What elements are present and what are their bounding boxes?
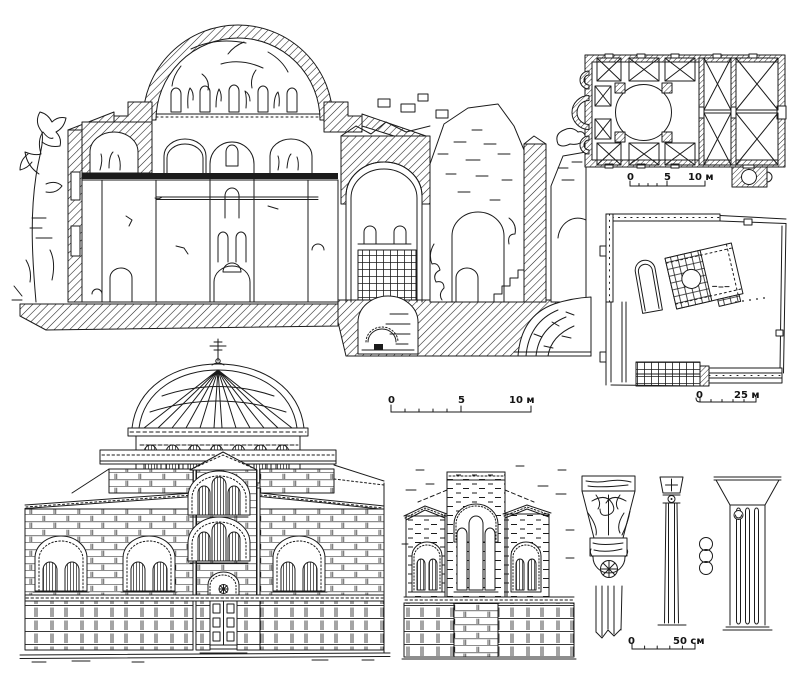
- details-scale-bar: 0 50 см: [628, 636, 705, 649]
- colonnette-detail: [658, 477, 686, 625]
- fluted-pier-detail: [714, 477, 781, 630]
- window-recess-right: [271, 536, 327, 592]
- scale-label: 5: [458, 395, 465, 406]
- architectural-details-drawing: 0 50 см: [580, 453, 795, 668]
- figure-page: 0 5 10 м: [0, 0, 800, 677]
- cross-finial-icon: [210, 339, 226, 365]
- window-recess-left: [33, 536, 89, 592]
- shaft-section-profile: [700, 538, 713, 575]
- fragment-tower: [447, 472, 505, 597]
- facade-fragment-drawing: [398, 450, 583, 665]
- scale-label: 10 м: [688, 172, 714, 183]
- scale-label: 0: [628, 636, 635, 647]
- scale-label: 50 см: [673, 636, 705, 647]
- monastery-site-plan-drawing: 0 25 м: [596, 202, 794, 414]
- dome-section: [114, 25, 362, 132]
- plan-vault-bays: [595, 58, 778, 165]
- ashlar-base: [20, 595, 390, 662]
- floor-plan-scale-bar: 0 5 10 м: [627, 172, 714, 186]
- plan-side-chapel: [732, 165, 772, 187]
- ribbed-dome: [128, 364, 308, 436]
- scale-label: 0: [696, 390, 703, 401]
- scale-label: 5: [664, 172, 671, 183]
- tree: [12, 112, 66, 302]
- scale-label: 25 м: [734, 390, 760, 401]
- elevation-scale-bar: 0 5 10 м: [383, 392, 543, 422]
- church-cross-section-drawing: [6, 4, 586, 356]
- fragment-left-bay: [404, 506, 447, 597]
- refectory-plan: [634, 259, 663, 314]
- south-stoa: [611, 362, 782, 386]
- church-facade-elevation-drawing: [12, 333, 397, 668]
- plan-naos: [615, 83, 672, 142]
- katholikon-plan: [665, 243, 745, 316]
- scale-label: 10 м: [509, 395, 535, 406]
- window-recess-mid: [121, 536, 177, 592]
- plan-walls: [572, 54, 786, 168]
- carved-capital-detail: [582, 476, 635, 638]
- church-floor-plan-drawing: 0 5 10 м: [565, 36, 795, 200]
- scale-label: 0: [627, 172, 634, 183]
- ruined-walls: [341, 104, 586, 302]
- fragment-right-bay: [503, 505, 551, 597]
- site-plan-scale-bar: 0 25 м: [696, 390, 760, 402]
- gallery-arches: [68, 122, 338, 179]
